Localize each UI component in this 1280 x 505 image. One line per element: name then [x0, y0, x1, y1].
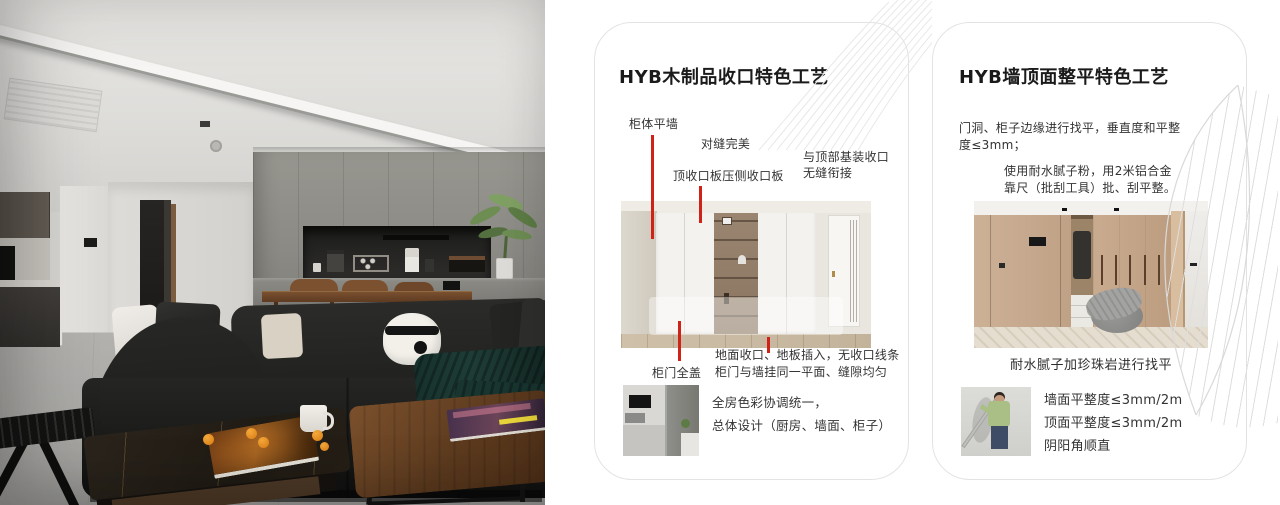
- wardrobe-render-image: [621, 201, 871, 348]
- callout-perfect-seam: 对缝完美: [701, 135, 750, 152]
- promo-banner: HYB木制品收口特色工艺 柜体平墙 对缝完美 顶收口板压侧收口板 与顶部基装收口…: [0, 0, 1280, 505]
- ceiling-spot: [1062, 208, 1067, 211]
- render-ceiling: [621, 201, 871, 213]
- footer-text: 全房色彩协调统一，: [712, 392, 827, 411]
- wave-lines-decoration: [757, 0, 932, 150]
- thumb-plant: [681, 419, 690, 428]
- thumbnail-photo: [623, 385, 699, 456]
- thumb-tv: [629, 395, 651, 408]
- callout-seamless-top-joint: 与顶部基装收口 无缝衔接: [803, 149, 899, 165]
- hanging-clothes: [1073, 231, 1091, 279]
- door-lock-panel: [1029, 237, 1046, 246]
- photo-vignette: [0, 0, 545, 505]
- door-handle: [999, 263, 1005, 268]
- spec-corners: 阴阳角顺直: [1044, 435, 1111, 454]
- thumb-sofa: [625, 413, 645, 423]
- callout-floor-joint: 地面收口、地板插入，无收口线条 柜门与墙挂同一平面、缝隙均匀: [715, 347, 905, 364]
- render-wood-floor: [621, 334, 871, 348]
- ceiling-spot: [1114, 208, 1119, 211]
- handle-groove: [1129, 255, 1131, 285]
- shelf-frame: [722, 217, 732, 225]
- door-knob: [832, 271, 835, 277]
- thumb-floor: [623, 425, 665, 456]
- footer-text: 总体设计（厨房、墙面、柜子）: [712, 415, 891, 434]
- worker-legs: [991, 426, 1008, 449]
- wood-wall: [974, 215, 1071, 330]
- handle-groove: [1115, 255, 1117, 285]
- callout-line: 地面收口、地板插入，无收口线条: [715, 347, 900, 364]
- thumb-counter: [681, 433, 699, 456]
- shelf-vase: [738, 255, 746, 264]
- callout-line: 柜门与墙挂同一平面、缝隙均匀: [715, 364, 887, 381]
- callout-line: 与顶部基装收口: [803, 149, 889, 165]
- worker-thumbnail: [961, 387, 1031, 456]
- callout-top-trim-board: 顶收口板压侧收口板: [673, 167, 784, 184]
- callout-full-overlay-doors: 柜门全盖: [652, 364, 701, 381]
- callout-cabinet-flush-wall: 柜体平墙: [629, 115, 678, 132]
- handle-groove: [1101, 255, 1103, 285]
- living-room-photo: [0, 0, 545, 505]
- leaf-edge-decoration: [1138, 85, 1278, 430]
- paragraph-leveling: 度≤3mm；: [959, 136, 1026, 153]
- callout-line: 无缝衔接: [803, 165, 852, 181]
- annotation-line: [699, 186, 702, 223]
- annotation-line: [678, 321, 681, 361]
- annotation-line: [651, 135, 654, 239]
